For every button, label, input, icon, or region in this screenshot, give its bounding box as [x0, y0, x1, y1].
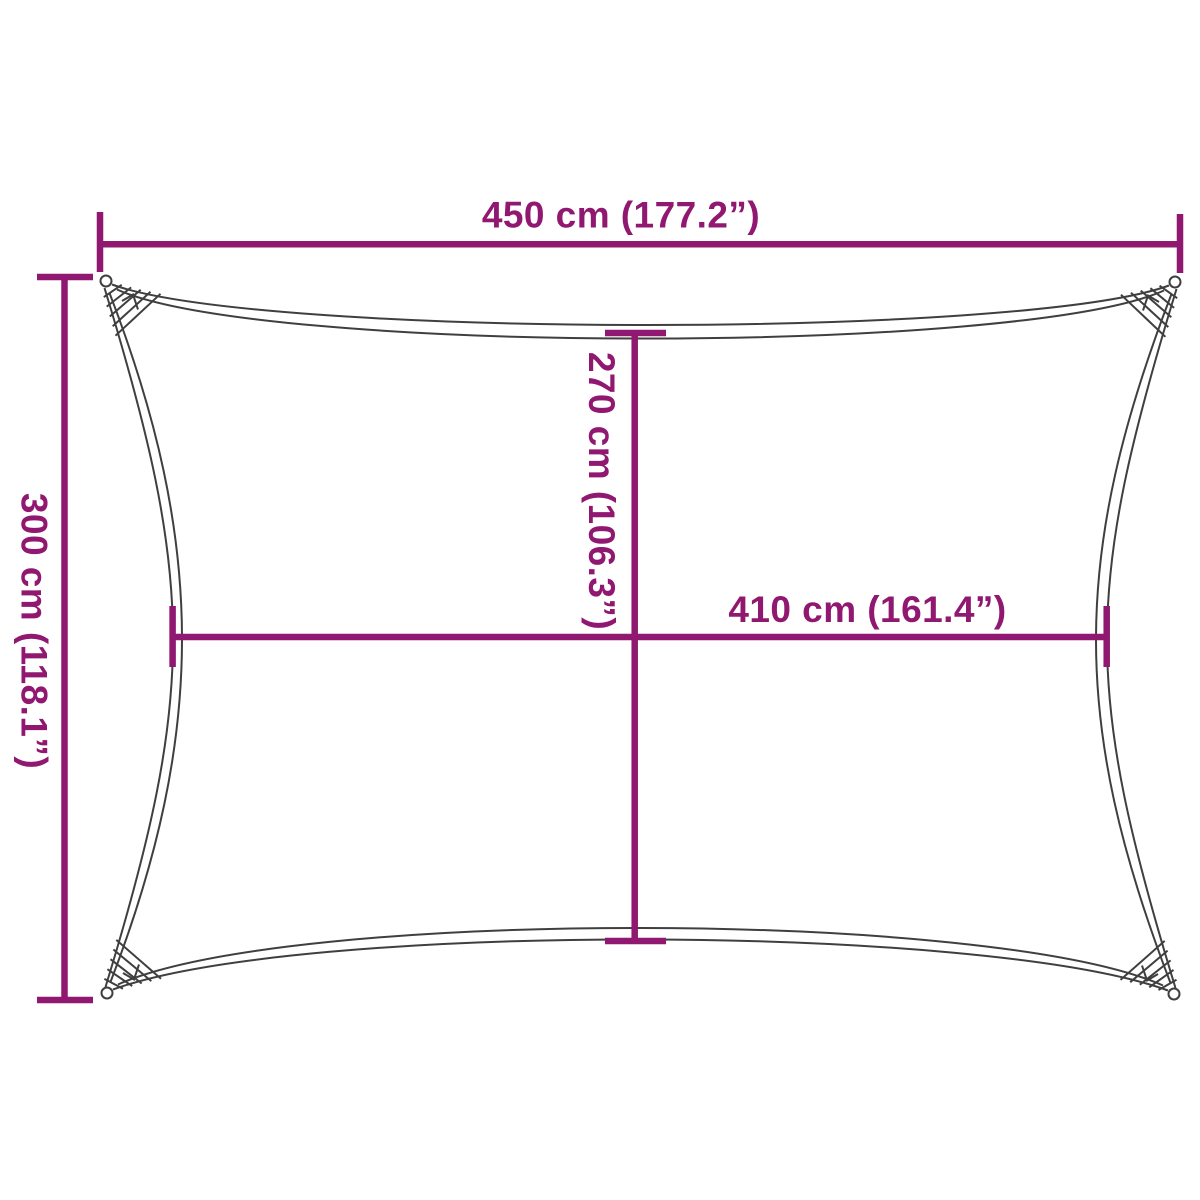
svg-text:410 cm (161.4”): 410 cm (161.4”)	[728, 589, 1006, 630]
svg-text:270 cm (106.3”): 270 cm (106.3”)	[581, 352, 622, 630]
svg-text:300 cm (118.1”): 300 cm (118.1”)	[14, 493, 55, 769]
svg-text:450 cm (177.2”): 450 cm (177.2”)	[482, 195, 760, 236]
